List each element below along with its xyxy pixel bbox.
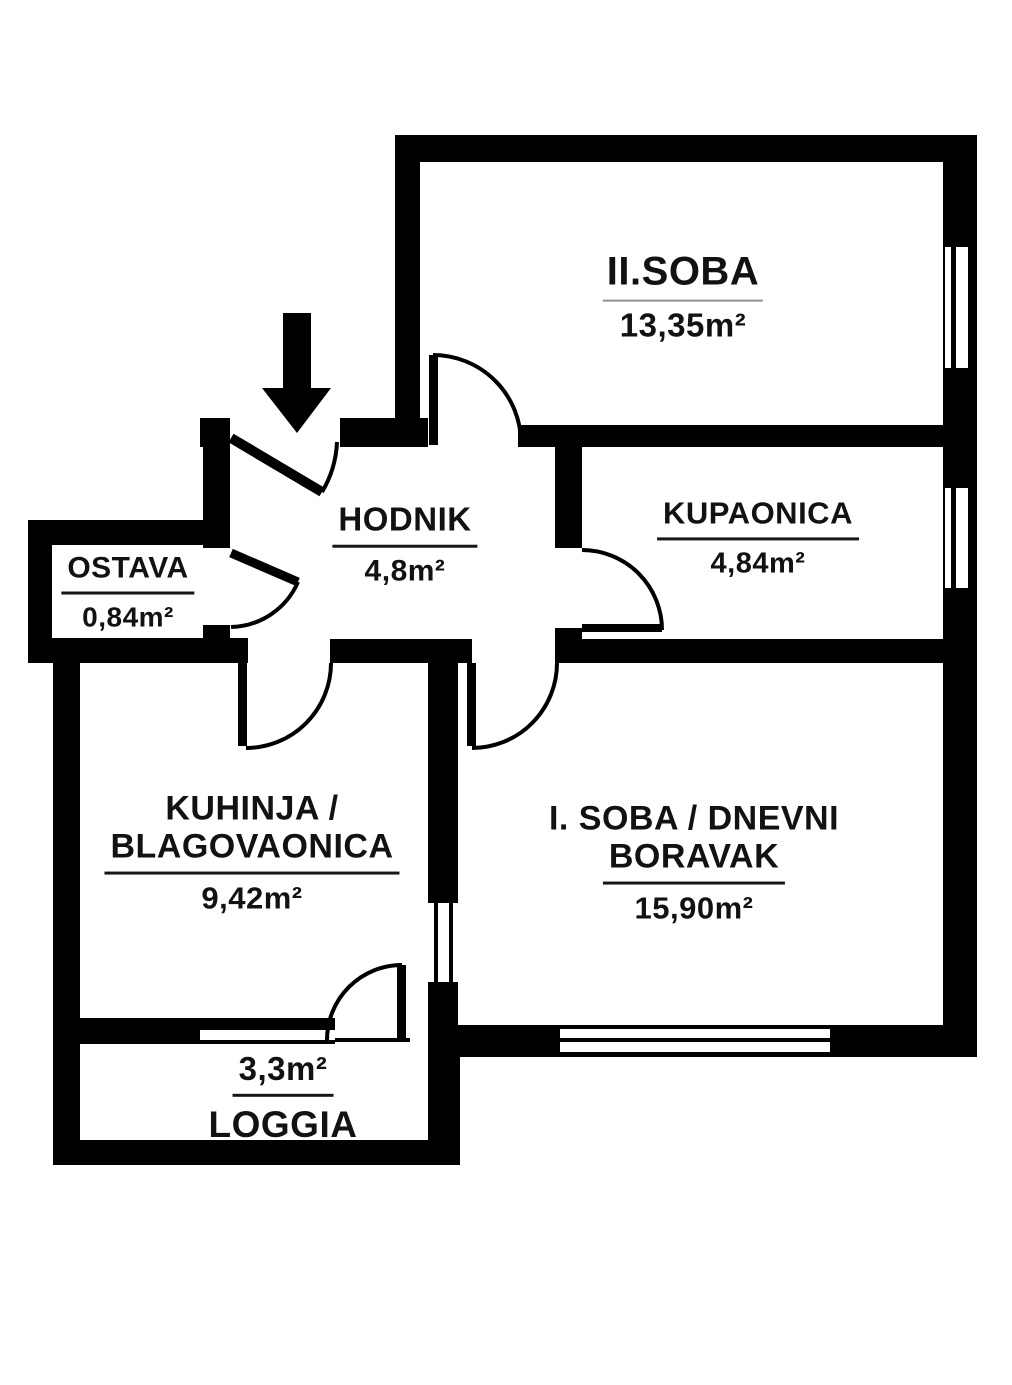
room-label-kupaonica: KUPAONICA 4,84m² xyxy=(657,496,859,579)
wall-kupaonica-left xyxy=(555,425,582,548)
door-leaf-loggia xyxy=(397,965,406,1042)
door-arc-soba1 xyxy=(472,663,557,748)
door-leaf-entrance xyxy=(231,438,322,492)
down-arrow-icon xyxy=(262,313,331,433)
window-soba2 xyxy=(945,247,968,368)
wall-kitchen-divider xyxy=(428,658,458,1042)
room-name: II.SOBA xyxy=(603,250,763,302)
room-name: KUPAONICA xyxy=(657,496,859,540)
door-leaf-soba2 xyxy=(429,355,438,445)
window-soba2-glass xyxy=(945,247,968,368)
room-label-loggia: 3,3m² LOGGIA xyxy=(209,1051,358,1145)
room-label-hodnik: HODNIK 4,8m² xyxy=(332,502,477,589)
window-kupaonica xyxy=(945,488,968,588)
room-name-line2: BORAVAK xyxy=(603,838,785,885)
wall-top xyxy=(395,135,977,162)
wall-kupaonica-bottom xyxy=(555,639,977,663)
down-arrow-shaft xyxy=(283,313,311,391)
room-area: 0,84m² xyxy=(61,601,194,632)
room-area: 4,84m² xyxy=(657,547,859,579)
room-name: HODNIK xyxy=(332,502,477,548)
room-area: 9,42m² xyxy=(104,882,399,917)
wall-soba2-left xyxy=(395,160,420,432)
room-area: 4,8m² xyxy=(332,555,477,589)
door-arc-entrance xyxy=(322,442,337,492)
door-leaf-ostava xyxy=(231,553,298,582)
window-kupaonica-frame xyxy=(951,488,956,588)
room-name: LOGGIA xyxy=(209,1104,358,1145)
room-label-ii-soba: II.SOBA 13,35m² xyxy=(603,250,763,345)
door-leaf-kuhinja xyxy=(238,663,247,746)
room-area: 3,3m² xyxy=(233,1051,334,1097)
room-label-kuhinja-blagovaonica: KUHINJA / BLAGOVAONICA 9,42m² xyxy=(104,790,399,917)
door-leaf-soba1 xyxy=(467,663,476,746)
floor-plan: II.SOBA 13,35m² KUPAONICA 4,84m² HODNIK … xyxy=(0,0,1012,1385)
window-kitchen-divider-glass xyxy=(428,903,458,982)
room-name-line2: BLAGOVAONICA xyxy=(104,828,399,875)
door-arc-ostava xyxy=(231,582,298,627)
room-area: 13,35m² xyxy=(603,307,763,344)
down-arrow-head xyxy=(262,388,331,433)
room-label-ostava: OSTAVA 0,84m² xyxy=(61,552,194,633)
room-name-line1: I. SOBA / DNEVNI xyxy=(549,800,839,838)
door-arc-kupaonica xyxy=(582,550,662,630)
room-area: 15,90m² xyxy=(549,892,839,927)
room-label-i-soba-dnevni-boravak: I. SOBA / DNEVNI BORAVAK 15,90m² xyxy=(549,800,839,927)
room-name: OSTAVA xyxy=(61,552,194,595)
window-soba2-frame xyxy=(951,247,956,368)
wall-ostava-right-stub xyxy=(203,625,230,663)
window-kitchen-divider xyxy=(428,903,458,982)
door-arc-kuhinja xyxy=(246,663,331,748)
door-arc-soba2 xyxy=(433,355,521,443)
door-leaf-kupaonica xyxy=(582,624,662,632)
window-kitchen-divider-frame-left xyxy=(434,903,438,982)
door-arc-loggia xyxy=(327,965,402,1040)
room-name-line1: KUHINJA / xyxy=(104,790,399,828)
wall-ostava-top xyxy=(28,520,230,545)
window-soba1-frame xyxy=(560,1038,830,1042)
window-kitchen-divider-frame-right xyxy=(449,903,453,982)
window-loggia-glass xyxy=(200,1030,335,1040)
window-kupaonica-glass xyxy=(945,488,968,588)
wall-hodnik-top xyxy=(340,418,428,447)
floor-plan-drawing xyxy=(0,0,1012,1385)
window-soba1 xyxy=(560,1029,830,1052)
wall-kitchen-left xyxy=(53,638,80,1165)
